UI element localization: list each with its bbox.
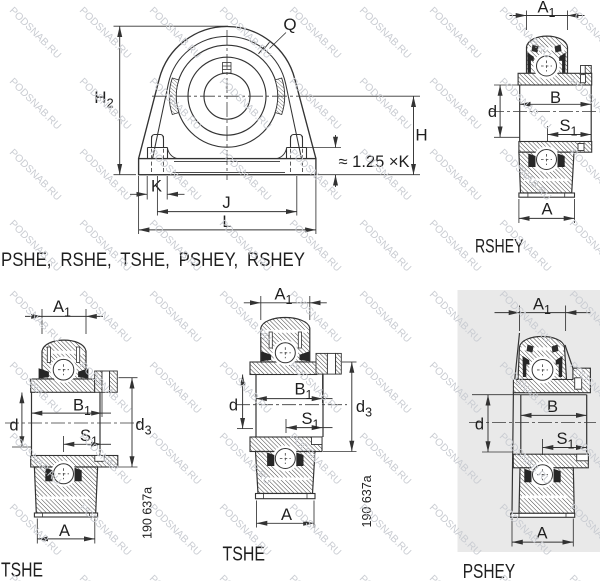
svg-text:A: A bbox=[541, 201, 552, 219]
svg-text:d: d bbox=[475, 416, 484, 434]
svg-text:d: d bbox=[488, 103, 497, 121]
svg-text:TSHE: TSHE bbox=[1, 560, 43, 581]
svg-text:d: d bbox=[229, 397, 238, 415]
svg-text:A: A bbox=[59, 522, 70, 540]
svg-text:K: K bbox=[151, 178, 162, 196]
svg-text:H: H bbox=[415, 126, 427, 145]
svg-text:B: B bbox=[550, 89, 561, 107]
svg-text:J: J bbox=[222, 194, 230, 212]
